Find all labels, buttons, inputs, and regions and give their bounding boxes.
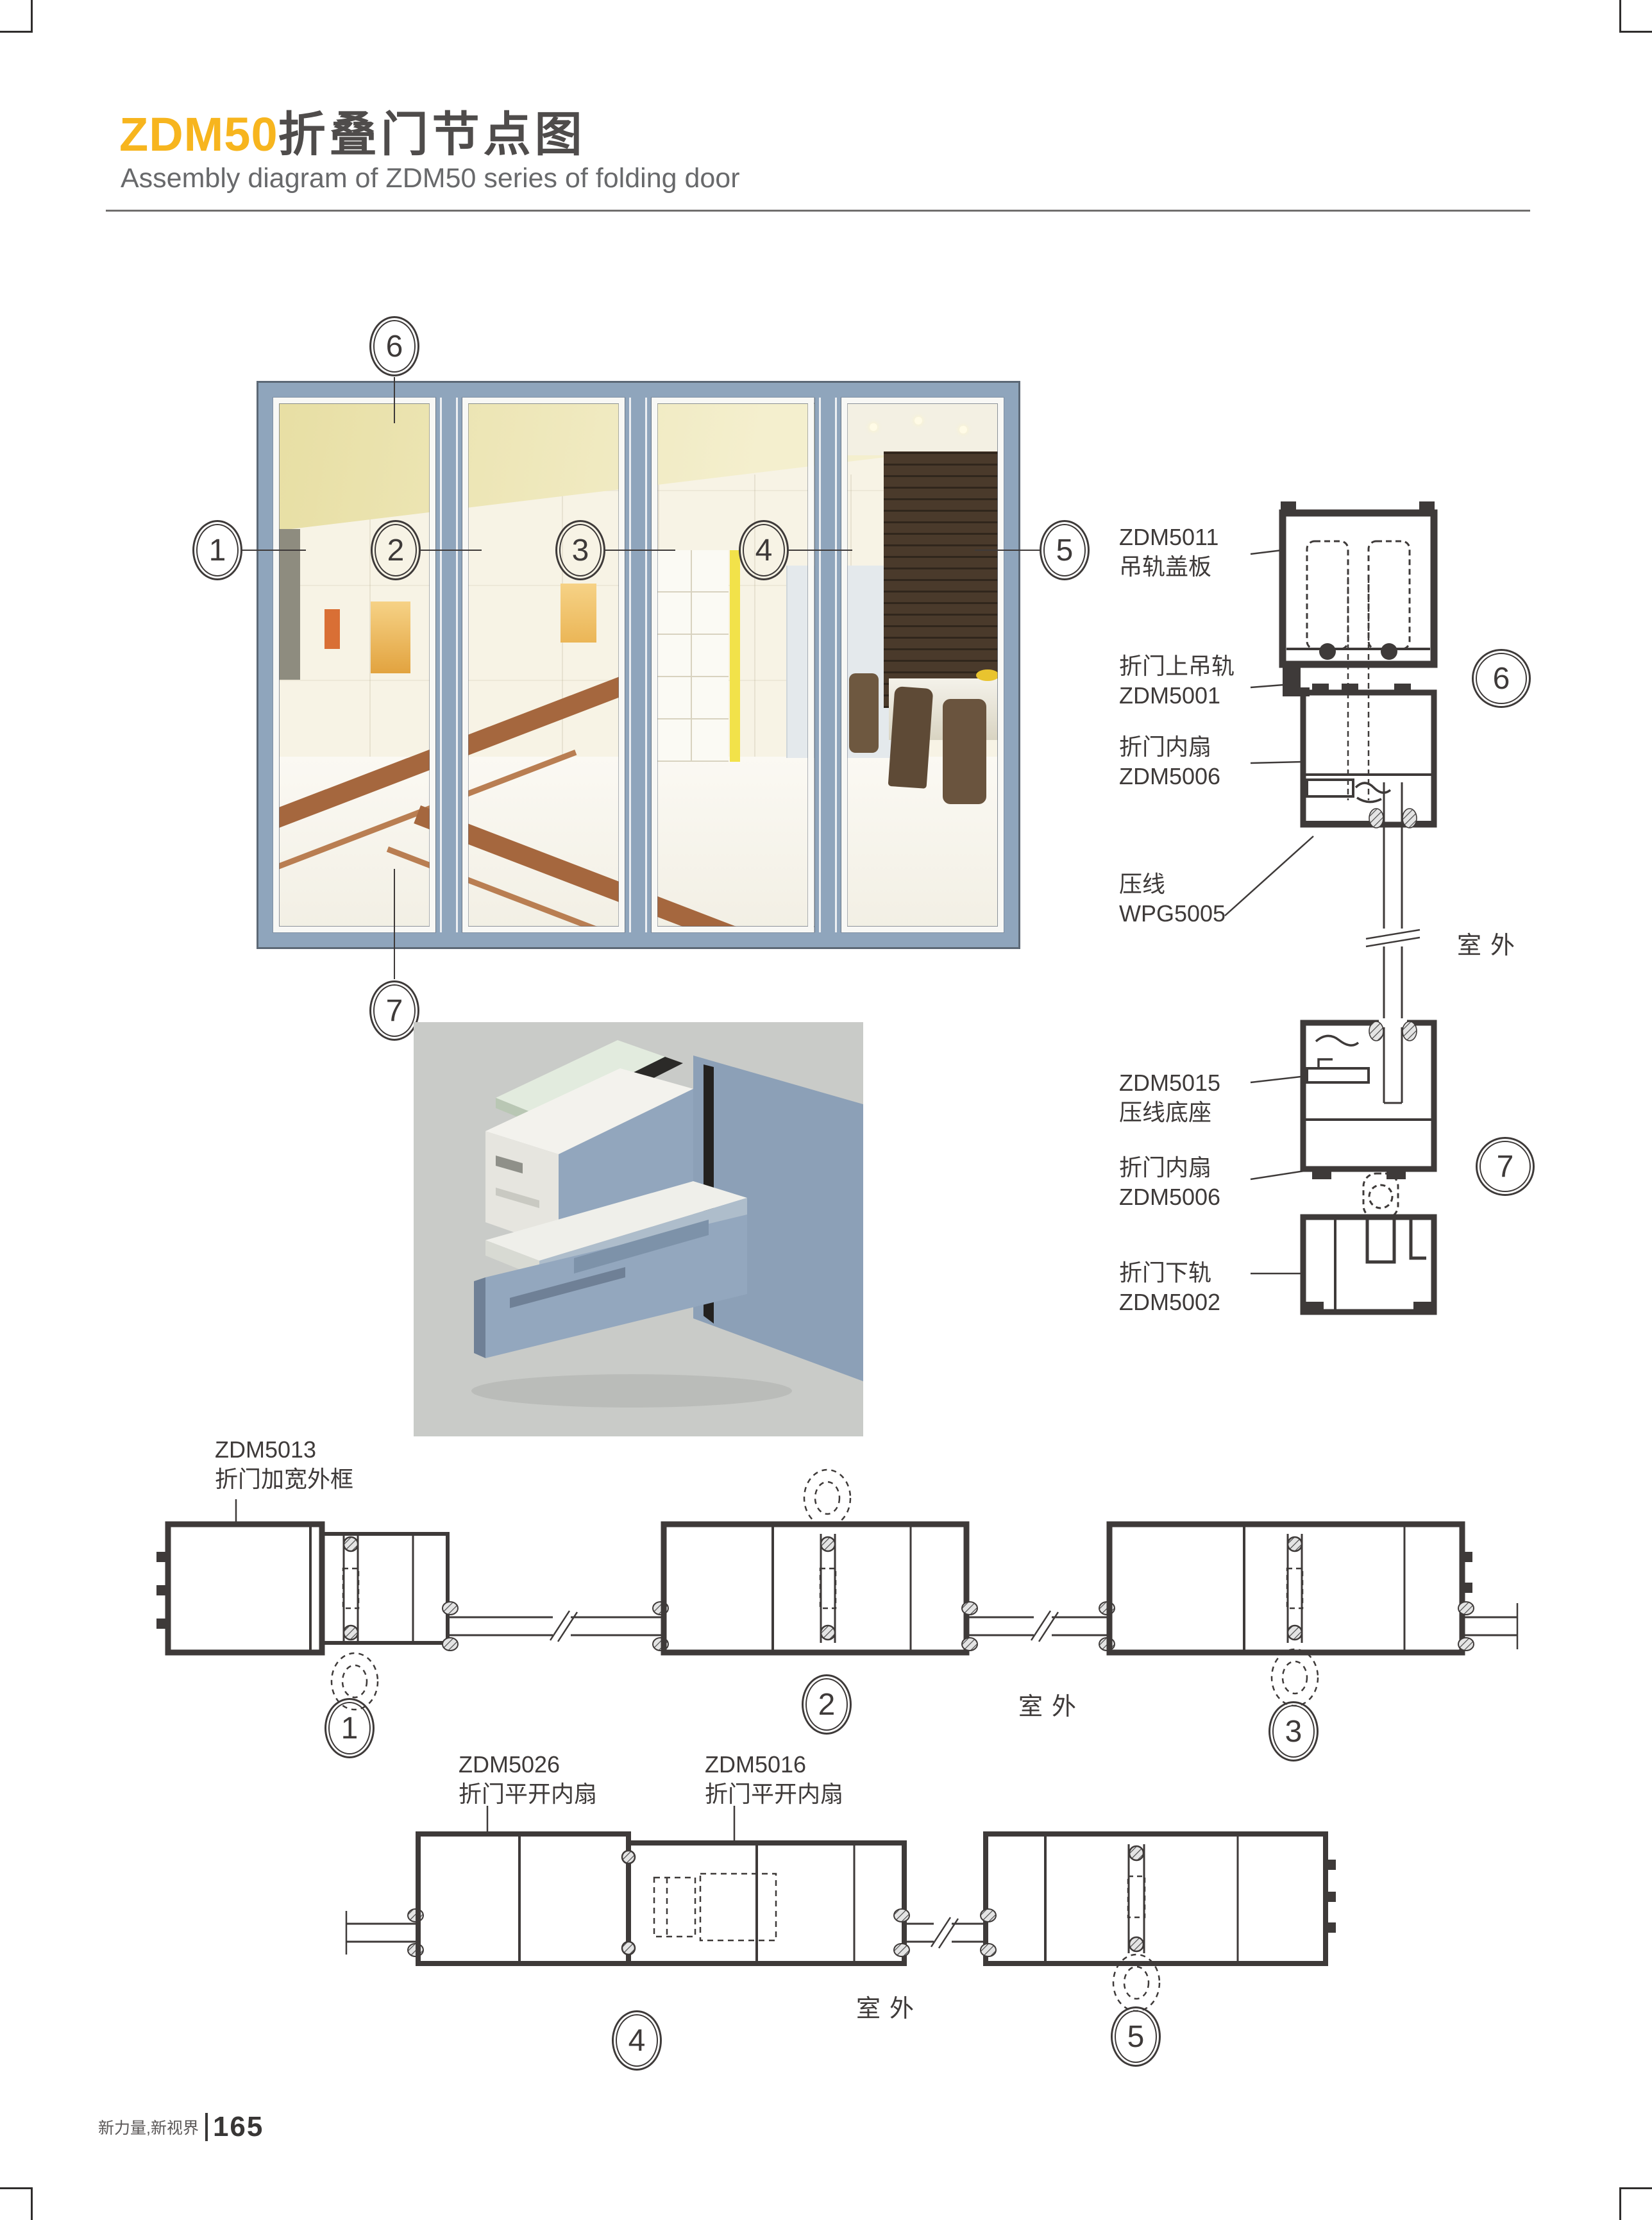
panel-sash [652, 398, 814, 932]
elevation-inner [273, 398, 1004, 932]
panel-sash [841, 398, 1004, 932]
callout-node-6: 6 [1472, 649, 1531, 708]
leader-line [605, 550, 675, 551]
door-elevation [257, 381, 1020, 949]
callout-section-4: 4 [612, 2010, 662, 2071]
corner-mark-top-right [1619, 0, 1652, 33]
mullion [435, 398, 462, 932]
title-series-code: ZDM50 [119, 108, 278, 161]
outdoor-label-row1: 室外 [1018, 1686, 1085, 1722]
callout-4: 4 [739, 520, 789, 580]
label-zdm5002: 折门下轨 ZDM5002 [1119, 1258, 1220, 1317]
callout-7: 7 [369, 980, 419, 1041]
callout-5: 5 [1040, 520, 1090, 580]
label-zdm5026: ZDM5026 折门平开内扇 [459, 1750, 597, 1809]
callout-section-2: 2 [802, 1674, 852, 1735]
label-wpg5005: 压线 WPG5005 [1119, 870, 1226, 929]
footer-divider [205, 2113, 208, 2141]
mullion [625, 398, 652, 932]
panel-sash [273, 398, 435, 932]
label-zdm5016: ZDM5016 折门平开内扇 [705, 1750, 843, 1809]
leader-line [394, 377, 395, 423]
callout-node-7: 7 [1476, 1137, 1535, 1196]
panel-sash [462, 398, 625, 932]
page-subtitle: Assembly diagram of ZDM50 series of fold… [121, 163, 740, 194]
label-zdm5001: 折门上吊轨 ZDM5001 [1119, 652, 1235, 711]
footer-page-number: 165 [213, 2111, 264, 2143]
page-footer: 新力量,新视界 165 [98, 2111, 264, 2143]
callout-1: 1 [192, 520, 242, 580]
catalog-page: ZDM50折叠门节点图 Assembly diagram of ZDM50 se… [0, 0, 1652, 2220]
profile-3d-render [414, 1022, 863, 1436]
label-zdm5006-bottom: 折门内扇 ZDM5006 [1119, 1153, 1220, 1212]
outdoor-label-vsec: 室外 [1457, 925, 1524, 961]
callout-6: 6 [369, 316, 419, 376]
label-zdm5015: ZDM5015 压线底座 [1119, 1068, 1220, 1127]
callout-2: 2 [371, 520, 421, 580]
outdoor-label-row2: 室外 [856, 1989, 923, 2024]
page-title: ZDM50折叠门节点图 [119, 96, 586, 165]
mullion [814, 398, 841, 932]
leader-line [394, 869, 395, 979]
leader-line [420, 550, 482, 551]
label-zdm5006-top: 折门内扇 ZDM5006 [1119, 732, 1220, 791]
leader-line [788, 550, 852, 551]
callout-3: 3 [555, 520, 605, 580]
leader-line [975, 550, 1040, 551]
leader-line [242, 550, 306, 551]
label-zdm5013: ZDM5013 折门加宽外框 [215, 1435, 353, 1494]
corner-mark-top-left [0, 0, 33, 33]
corner-mark-bottom-left [0, 2187, 33, 2220]
label-zdm5011: ZDM5011 吊轨盖板 [1119, 523, 1218, 582]
title-chinese: 折叠门节点图 [278, 108, 586, 161]
footer-brand: 新力量,新视界 [98, 2115, 199, 2139]
callout-section-5: 5 [1111, 2006, 1161, 2067]
corner-mark-bottom-right [1619, 2187, 1652, 2220]
title-rule [106, 210, 1530, 212]
